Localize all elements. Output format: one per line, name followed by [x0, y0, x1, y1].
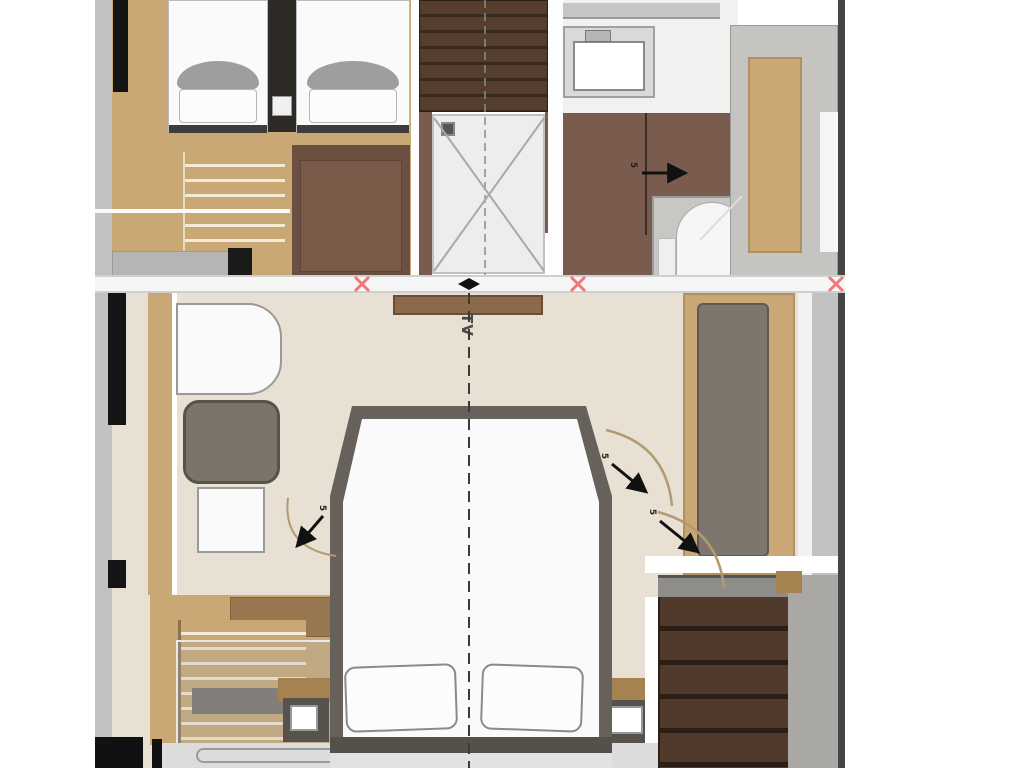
- stairwell-wall-right: [548, 0, 563, 283]
- vanity-sink: [573, 41, 645, 91]
- twin-bed-right-footboard: [297, 125, 409, 133]
- stair-landing-right: [788, 575, 838, 768]
- twin-beds-nightstand: [268, 0, 296, 132]
- door-note-master-upper: 5: [599, 453, 609, 459]
- vanity-faucet-icon: [585, 30, 611, 42]
- forward-closet-rail: [95, 209, 290, 213]
- nightstand-left-lamp: [290, 705, 318, 731]
- hull-wall-right: [838, 0, 845, 768]
- side-gap-white: [820, 112, 838, 252]
- door-note-forward-bath: 5: [628, 162, 638, 168]
- forward-wardrobe-door: [300, 160, 402, 272]
- twin-bed-right: [296, 0, 410, 132]
- master-chair: [183, 400, 280, 484]
- yacht-floorplan: TV: [0, 0, 1024, 768]
- forward-closet-shelves: [183, 152, 285, 252]
- walkway-gray-right: [812, 293, 838, 580]
- hull-wall-left-upper: [95, 0, 112, 285]
- forward-staircase: [419, 0, 548, 112]
- door-note-master-left: 5: [317, 505, 327, 511]
- side-bench-cushion: [748, 57, 802, 253]
- shower-room: [432, 114, 545, 274]
- tv-label: TV: [458, 313, 476, 337]
- shower-control-icon: [441, 122, 455, 136]
- master-sofa-cushion: [697, 303, 769, 557]
- walkway-white-right: [798, 293, 812, 580]
- stair-trim-tan: [776, 571, 802, 593]
- hull-window-bottom-left-2: [152, 739, 162, 768]
- stair-landing-top: [658, 575, 788, 597]
- hull-window-bottom-left: [95, 737, 143, 768]
- aft-staircase: [658, 597, 788, 768]
- twin-bed-left-pillow: [179, 89, 257, 123]
- bathroom-top-wall: [563, 3, 720, 19]
- bathroom-door-edge: [645, 113, 647, 235]
- master-desk: [176, 303, 282, 395]
- shower-wall-left: [419, 112, 432, 283]
- master-side-panel: [148, 293, 172, 595]
- stairwell-wall-left: [411, 0, 419, 285]
- nightstand-right: [599, 700, 651, 744]
- vanity-counter: [563, 26, 655, 98]
- twin-bed-right-pillow: [309, 89, 397, 123]
- nightstand-left: [283, 698, 329, 742]
- hull-window-bar-mid: [108, 293, 126, 425]
- nightstand-lamp-fwd: [272, 96, 292, 116]
- stair-landing-white: [645, 556, 838, 573]
- forward-wardrobe: [292, 145, 410, 283]
- twin-bed-left: [168, 0, 268, 132]
- foot-bench-outline: [196, 748, 564, 763]
- hull-window-bar-upper: [113, 0, 128, 92]
- lobby-wall-strip: [558, 580, 594, 768]
- hull-window-bar-low: [108, 560, 126, 588]
- twin-bed-left-footboard: [169, 125, 267, 133]
- nightstand-right-lamp: [607, 706, 643, 734]
- bulkhead-band: [95, 275, 845, 293]
- headboard-shelf: [393, 295, 543, 315]
- door-note-master-lower: 5: [647, 509, 657, 515]
- toilet-side-left: [658, 238, 676, 280]
- master-cabinet: [197, 487, 265, 553]
